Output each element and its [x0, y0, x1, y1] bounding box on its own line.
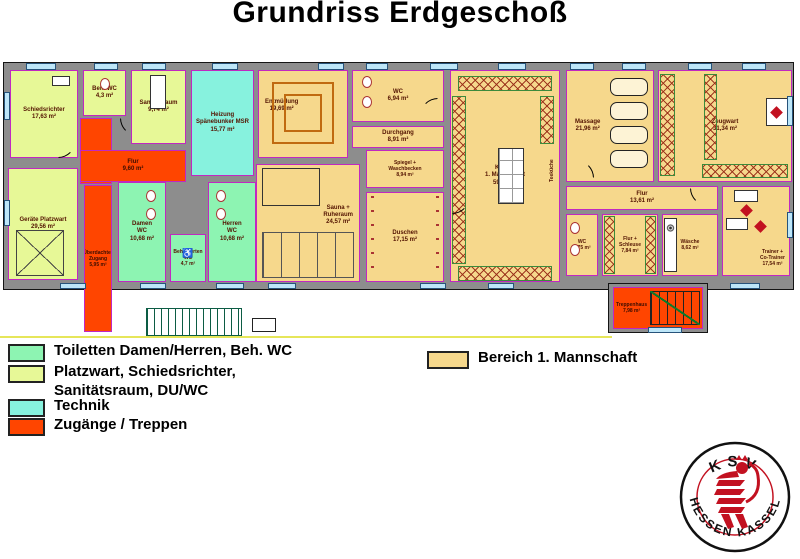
window [216, 283, 244, 289]
shelf-hatch [660, 74, 675, 176]
window [4, 92, 10, 120]
room-label: Duschen 17,15 m² [392, 230, 417, 244]
window [648, 327, 682, 333]
room-label: Flur 13,61 m² [630, 191, 654, 205]
shower-heads [371, 196, 374, 278]
legend-swatch [8, 399, 45, 417]
room-label: WC 6,94 m² [388, 89, 409, 103]
shelf-hatch [702, 164, 788, 178]
toilet [146, 208, 156, 220]
legend-label: Platzwart, Schiedsrichter, Sanitätsraum,… [54, 363, 236, 401]
room-label: Sauna + Ruheraum 24,57 m² [323, 205, 353, 227]
wheelchair-icon: ♿ [182, 248, 193, 259]
toilet [362, 96, 372, 108]
window [488, 283, 514, 289]
exterior-stairs [146, 308, 242, 336]
ksv-hessen-kassel-logo: KSV HESSEN KASSEL [674, 440, 796, 555]
pool-inner [284, 94, 322, 132]
entry-step [252, 318, 276, 332]
tea-kitchen-unit [498, 148, 524, 204]
toilet [100, 78, 110, 90]
legend-label: Zugänge / Treppen [54, 416, 187, 435]
room-label: Flur + Schleuse 7,84 m² [619, 236, 641, 254]
bench-hatch [458, 266, 552, 281]
toilet [216, 208, 226, 220]
legend-swatch [8, 418, 45, 436]
massage-table [610, 102, 648, 120]
legend-swatch [427, 351, 469, 369]
shower-heads [436, 196, 439, 278]
legend-item-toiletten: Toiletten Damen/Herren, Beh. WC [8, 344, 292, 362]
room-label: Massage 21,96 m² [575, 119, 600, 133]
legend-item-bereich-1-mannschaft: Bereich 1. Mannschaft [427, 351, 637, 369]
room-ueberdachter-zugang: Überdachter Zugang 5,95 m² [84, 185, 112, 332]
room-label: Trainer + Co-Trainer 17,54 m² [760, 249, 785, 267]
window [94, 63, 118, 70]
room-label: Damen WC 10,68 m² [130, 221, 154, 243]
room-label-teekueche: Teeküche [549, 138, 555, 182]
legend-label: Toiletten Damen/Herren, Beh. WC [54, 342, 292, 361]
room-label: Treppenhaus 7,98 m² [616, 302, 647, 314]
bench-hatch [540, 96, 554, 144]
window [142, 63, 166, 70]
massage-table [610, 150, 648, 168]
toilet [146, 190, 156, 202]
room-label: Spiegel + Waschbecken 8,94 m² [388, 160, 421, 178]
window [366, 63, 388, 70]
legend-swatch [8, 365, 45, 383]
desk [52, 76, 70, 86]
window [26, 63, 56, 70]
room-label: Herren WC 10,68 m² [220, 221, 244, 243]
window [688, 63, 712, 70]
room-damen-wc: Damen WC 10,68 m² [118, 182, 166, 282]
massage-table [610, 126, 648, 144]
window [498, 63, 526, 70]
shelf-hatch [704, 74, 717, 160]
window [430, 63, 458, 70]
site-boundary-line [0, 336, 612, 338]
room-label: Wäsche 8,62 m² [681, 239, 700, 251]
legend-label: Technik [54, 397, 110, 416]
page-title: Grundriss Erdgeschoß [0, 0, 800, 30]
bench-hatch [458, 76, 552, 91]
legend-swatch [8, 344, 45, 362]
toilet [570, 244, 580, 256]
window [60, 283, 86, 289]
legend-label: Bereich 1. Mannschaft [478, 349, 637, 368]
room-heizung: Heizung Spänebunker MSR 15,77 m² [191, 70, 254, 176]
room-spiegel-waschbecken: Spiegel + Waschbecken 8,94 m² [366, 150, 444, 188]
window [787, 96, 793, 126]
bench-hatch [452, 96, 466, 264]
window [730, 283, 760, 289]
room-beh-wc: Beh. WC 4,3 m² [83, 70, 126, 116]
room-duschen: Duschen 17,15 m² [366, 192, 444, 282]
room-label: Heizung Spänebunker MSR 15,77 m² [196, 112, 249, 134]
bed [150, 75, 166, 109]
legend-item-technik: Technik [8, 399, 110, 417]
legend-item-platzwart: Platzwart, Schiedsrichter, Sanitätsraum,… [8, 365, 236, 401]
floor-plan-page: Grundriss Erdgeschoß Schiedsrichter 17,6… [0, 0, 800, 559]
massage-table [610, 78, 648, 96]
locker-hatch [645, 216, 656, 274]
window [4, 200, 10, 226]
room-label: Schiedsrichter 17,63 m² [23, 107, 65, 121]
window [570, 63, 594, 70]
room-label: Durchgang 8,91 m² [382, 130, 414, 144]
window [268, 283, 296, 289]
window [212, 63, 238, 70]
garage-door [16, 230, 64, 276]
room-label: Flur 9,60 m² [123, 159, 144, 173]
legend-item-zugaenge: Zugänge / Treppen [8, 418, 187, 436]
toilet [570, 222, 580, 234]
locker-hatch [604, 216, 615, 274]
logo-svg: KSV HESSEN KASSEL [674, 440, 796, 555]
window [622, 63, 646, 70]
window [787, 212, 793, 238]
window [140, 283, 166, 289]
desk [726, 218, 748, 230]
window [420, 283, 446, 289]
desk [734, 190, 758, 202]
window [742, 63, 766, 70]
sauna-cabin [262, 168, 320, 206]
room-durchgang: Durchgang 8,91 m² [352, 126, 444, 148]
washing-machines [664, 218, 677, 272]
window [318, 63, 344, 70]
toilet [216, 190, 226, 202]
stair-handrail [650, 291, 700, 325]
room-label: Überdachter Zugang 5,95 m² [84, 250, 112, 268]
room-flur-links: Flur 9,60 m² [80, 150, 186, 182]
sauna-benches [262, 232, 354, 278]
toilet [362, 76, 372, 88]
